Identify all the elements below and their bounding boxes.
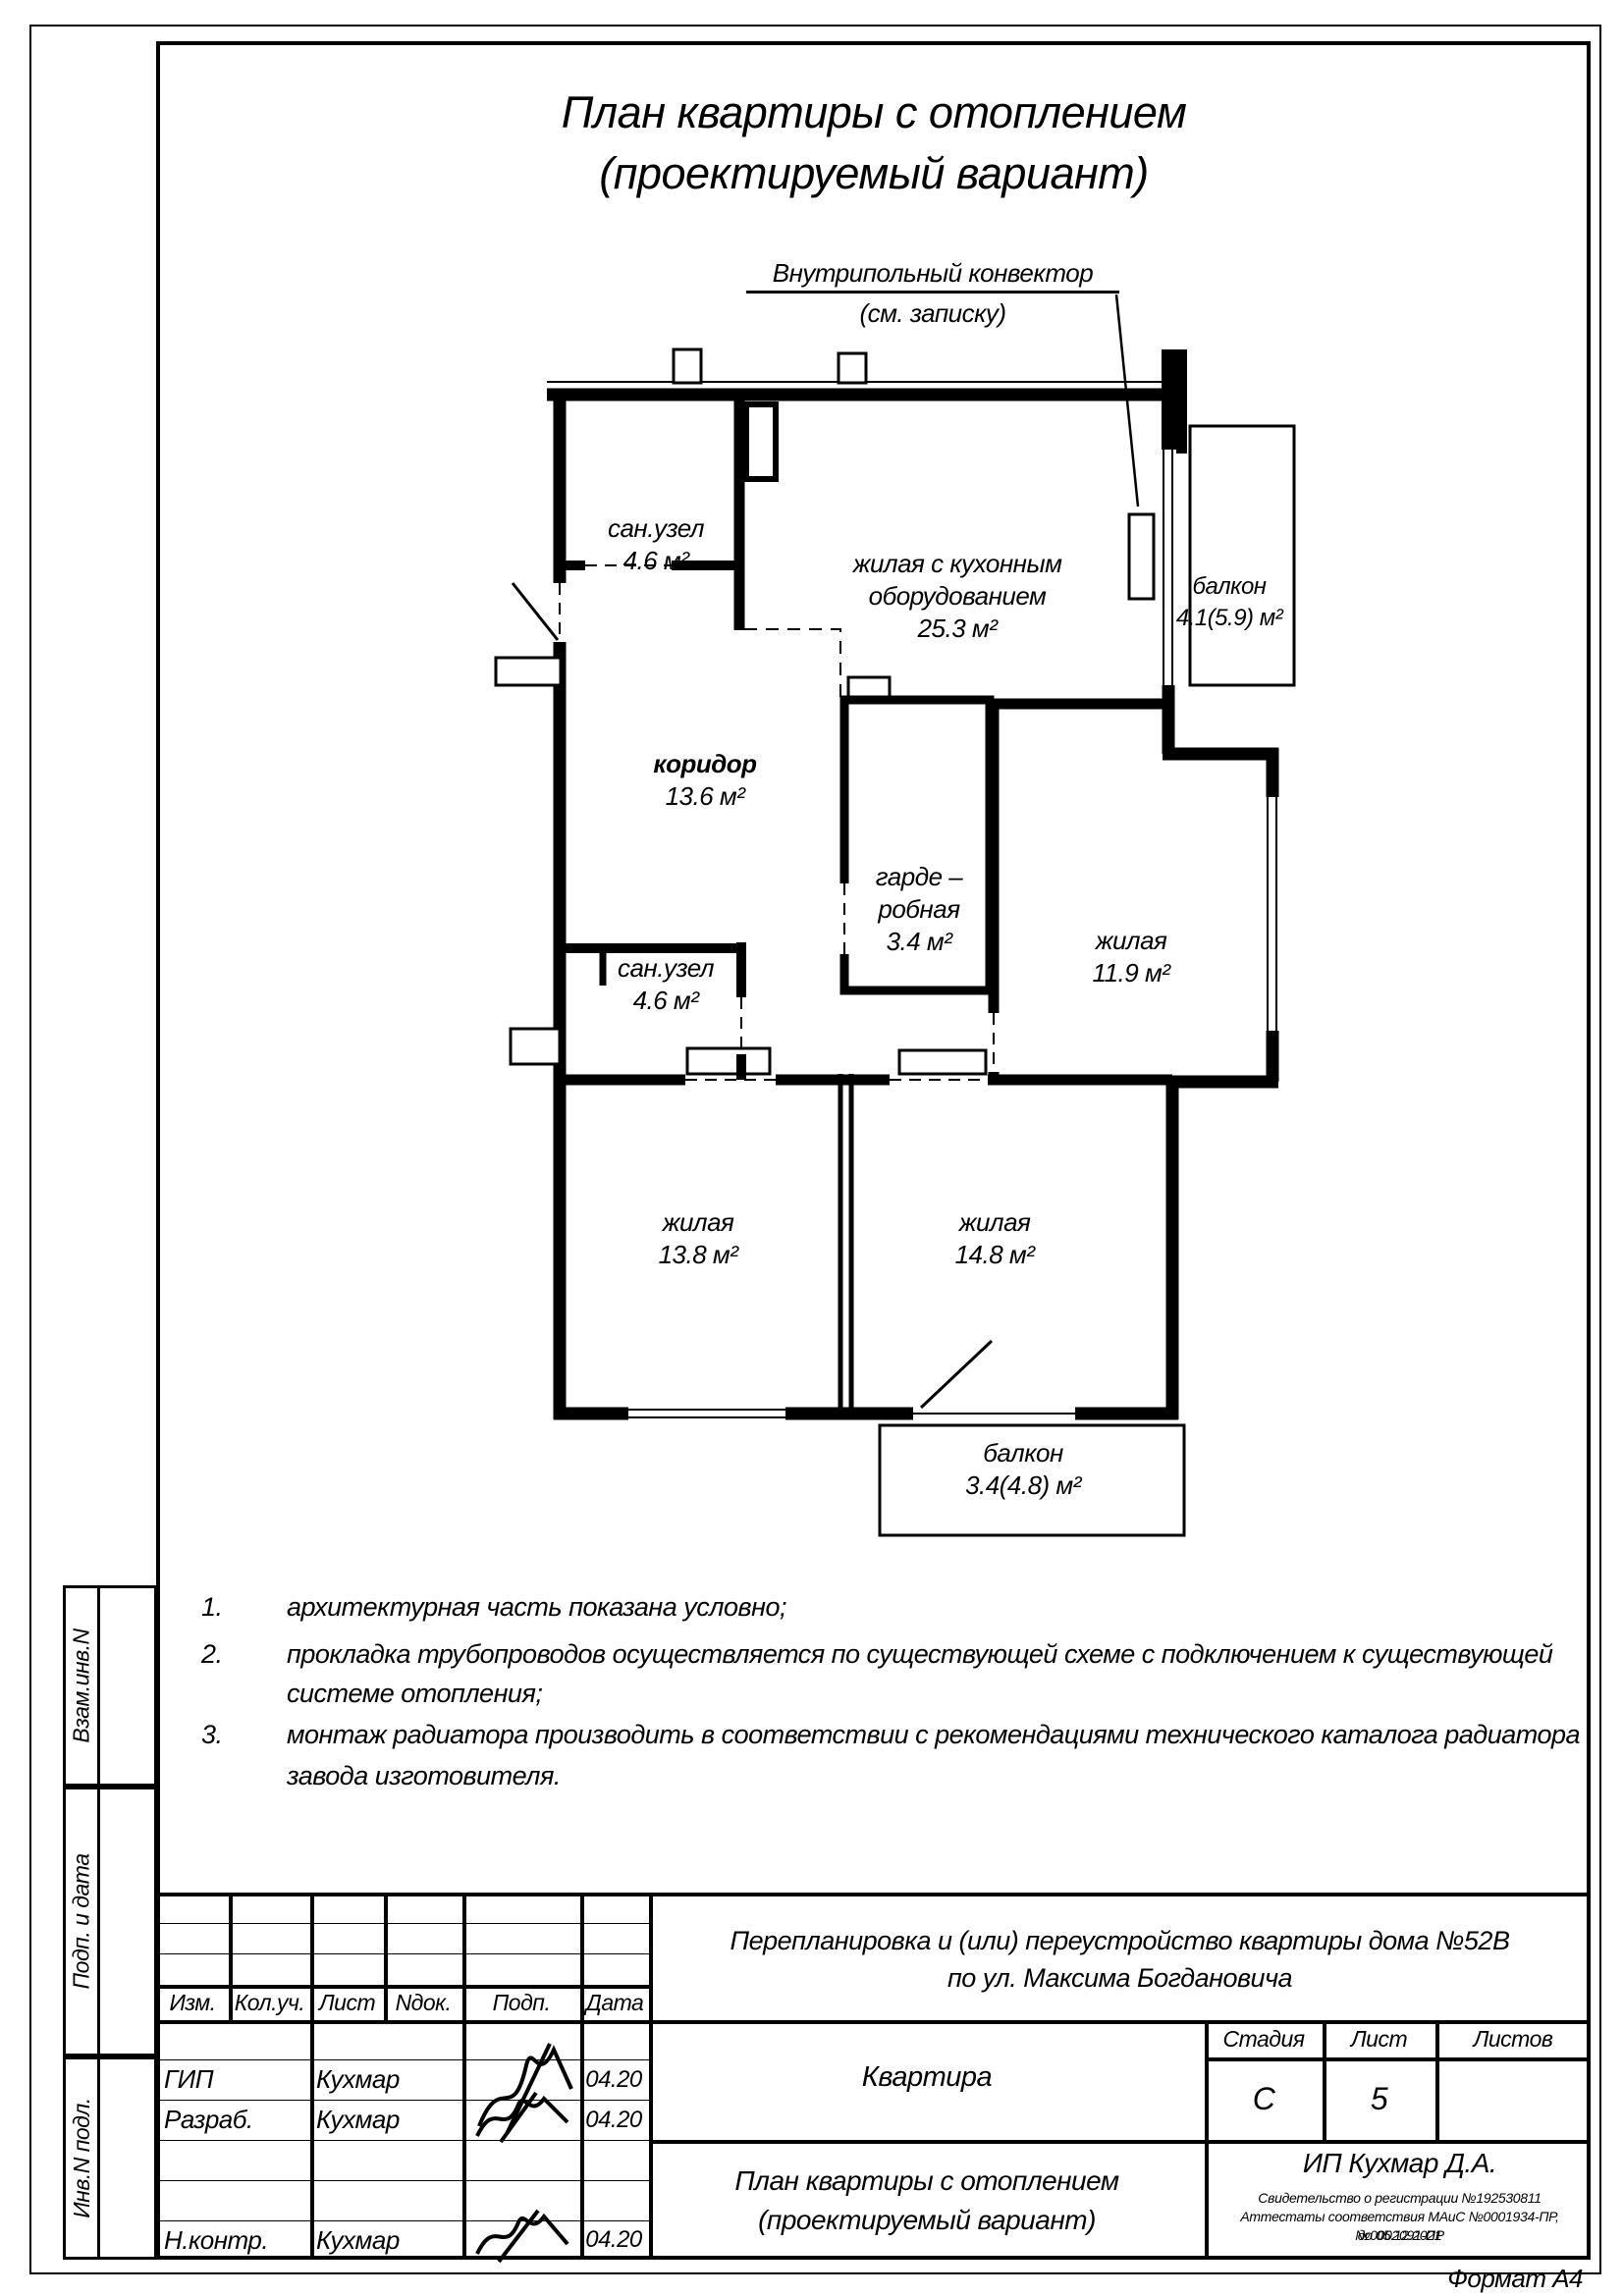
window-opening xyxy=(628,1406,785,1422)
room-area: 13.6 м² xyxy=(597,780,813,813)
room-label-room148: жилая 14.8 м² xyxy=(887,1206,1103,1271)
room-area: 4.6 м² xyxy=(558,985,774,1017)
col-header-podp: Подп. xyxy=(462,1985,580,2020)
vent-shaft-tick xyxy=(848,677,890,697)
format-label: Формат А4 xyxy=(1386,2264,1583,2294)
room-name: жилая xyxy=(1023,925,1239,957)
side-box-text: Инв.N подл. xyxy=(69,2098,95,2218)
row-gip-name: Кухмар xyxy=(316,2059,459,2100)
note-number: 1. xyxy=(201,1592,244,1623)
side-box-label: Подп. и дата xyxy=(66,1789,97,2054)
note-number: 2. xyxy=(201,1639,244,1670)
door-leaf xyxy=(899,1050,986,1074)
room-label-corridor: коридор 13.6 м² xyxy=(597,748,813,813)
doc-title: План квартиры с отоплением (проектируемы… xyxy=(649,2162,1205,2240)
project-title: Перепланировка и (или) переустройство кв… xyxy=(649,1922,1591,1997)
vent-shaft-tick xyxy=(674,349,701,383)
row-nkontr-date: 04.20 xyxy=(582,2220,645,2260)
titleblock-line xyxy=(156,1893,1591,1896)
note-number: 3. xyxy=(201,1720,244,1750)
col-header-koluch: Кол.уч. xyxy=(229,1985,310,2020)
room-area: 4.6 м² xyxy=(548,545,764,577)
note-text: системе отопления; xyxy=(287,1679,542,1709)
balcony-door-swing xyxy=(921,1341,992,1408)
row-razrab-role: Разраб. xyxy=(164,2100,306,2140)
room-label-room138: жилая 13.8 м² xyxy=(590,1206,806,1271)
room-name: жилая xyxy=(590,1206,806,1239)
side-box-divider xyxy=(97,1588,100,1784)
convector-symbol xyxy=(1129,514,1154,599)
door-leaf xyxy=(687,1048,770,1074)
titleblock-thin-line xyxy=(156,2180,649,2181)
drawing-title: План квартиры с отоплением (проектируемы… xyxy=(481,82,1267,204)
company-cert3: до 05.12.2021 xyxy=(1209,2226,1591,2245)
note-text: завода изготовителя. xyxy=(287,1761,561,1791)
project-title-line2: по ул. Максима Богдановича xyxy=(649,1959,1591,1997)
sheet-label: Лист xyxy=(1323,2022,1435,2056)
room-area: 3.4 м² xyxy=(831,926,1007,958)
note-text: монтаж радиатора производить в соответст… xyxy=(287,1720,1580,1750)
row-gip-date: 04.20 xyxy=(582,2059,645,2100)
side-box-label: Инв.N подл. xyxy=(66,2059,97,2257)
drawing-title-line1: План квартиры с отоплением xyxy=(481,82,1267,143)
row-gip-role: ГИП xyxy=(164,2059,306,2100)
col-header-ndok: Nдок. xyxy=(384,1985,462,2020)
side-box-divider xyxy=(97,1789,100,2054)
col-header-izm: Изм. xyxy=(156,1985,229,2020)
side-box-text: Подп. и дата xyxy=(69,1854,95,1990)
col-header-data: Дата xyxy=(580,1985,649,2020)
wall-pilaster xyxy=(511,1029,560,1064)
room-label-living: жилая с кухонным оборудованием 25.3 м² xyxy=(800,548,1114,645)
room-name: коридор xyxy=(597,748,813,780)
titleblock-line xyxy=(649,2140,1591,2144)
balcony-top-outline xyxy=(1190,426,1294,685)
row-razrab-date: 04.20 xyxy=(582,2100,645,2140)
signature-nkontr xyxy=(473,2205,581,2266)
stage-label: Стадия xyxy=(1205,2022,1323,2056)
sheets-value xyxy=(1435,2061,1591,2136)
room-area: 13.8 м² xyxy=(590,1239,806,1271)
room-label-room119: жилая 11.9 м² xyxy=(1023,925,1239,989)
doc-title-line1: План квартиры с отоплением xyxy=(649,2162,1205,2201)
wall-pilaster xyxy=(496,658,561,685)
drawing-title-line2: (проектируемый вариант) xyxy=(481,143,1267,204)
titleblock-vline xyxy=(310,1893,314,2260)
side-box-inv: Инв.N подл. xyxy=(63,2056,157,2260)
titleblock-vline xyxy=(462,1893,466,2260)
sheet-value: 5 xyxy=(1323,2061,1435,2136)
room-area: 11.9 м² xyxy=(1023,957,1239,989)
room-name: сан.узел xyxy=(548,512,764,545)
room-label-balcony-top: балкон 4.1(5.9) м² xyxy=(1156,571,1303,634)
company-cert1: Свидетельство о регистрации №192530811 xyxy=(1209,2189,1591,2208)
col-header-list: Лист xyxy=(310,1985,384,2020)
vent-shaft-tick xyxy=(839,353,866,383)
side-box-text: Взам.инв.N xyxy=(69,1629,95,1742)
row-razrab-name: Кухмар xyxy=(316,2100,459,2140)
room-area: 14.8 м² xyxy=(887,1239,1103,1271)
drawing-sheet: План квартиры с отоплением (проектируемы… xyxy=(0,0,1623,2296)
doc-title-line2: (проектируемый вариант) xyxy=(649,2201,1205,2240)
room-area: 25.3 м² xyxy=(800,613,1114,645)
room-name: балкон xyxy=(915,1437,1131,1469)
room-area: 4.1(5.9) м² xyxy=(1156,603,1303,634)
room-area: 3.4(4.8) м² xyxy=(915,1469,1131,1502)
room-name: жилая xyxy=(887,1206,1103,1239)
room-name: сан.узел xyxy=(558,952,774,985)
row-nkontr-name: Кухмар xyxy=(316,2220,459,2260)
room-label-san1: сан.узел 4.6 м² xyxy=(548,512,764,577)
side-box-vzam: Взам.инв.N xyxy=(63,1585,157,1787)
project-title-line1: Перепланировка и (или) переустройство кв… xyxy=(649,1922,1591,1959)
side-box-label: Взам.инв.N xyxy=(66,1588,97,1784)
room-name: оборудованием xyxy=(800,580,1114,613)
room-label-wardrobe: гарде – робная 3.4 м² xyxy=(831,861,1007,958)
room-label-san2: сан.узел 4.6 м² xyxy=(558,952,774,1017)
room-name: балкон xyxy=(1156,571,1303,603)
side-box-divider xyxy=(97,2059,100,2257)
signature-razrab xyxy=(473,2089,581,2148)
room-name: гарде – xyxy=(831,861,1007,893)
room-name: робная xyxy=(831,893,1007,926)
note-text: архитектурная часть показана условно; xyxy=(287,1592,786,1623)
room-label-balcony-bottom: балкон 3.4(4.8) м² xyxy=(915,1437,1131,1502)
note-text: прокладка трубопроводов осуществляется п… xyxy=(287,1639,1552,1670)
row-nkontr-role: Н.контр. xyxy=(164,2220,306,2260)
duct-block xyxy=(746,404,776,479)
object-name: Квартира xyxy=(649,2061,1205,2094)
room-name: жилая с кухонным xyxy=(800,548,1114,580)
side-box-podp: Подп. и дата xyxy=(63,1787,157,2056)
sheets-label: Листов xyxy=(1435,2022,1591,2056)
company-name: ИП Кухмар Д.А. xyxy=(1209,2148,1591,2179)
stage-value: С xyxy=(1205,2061,1323,2136)
